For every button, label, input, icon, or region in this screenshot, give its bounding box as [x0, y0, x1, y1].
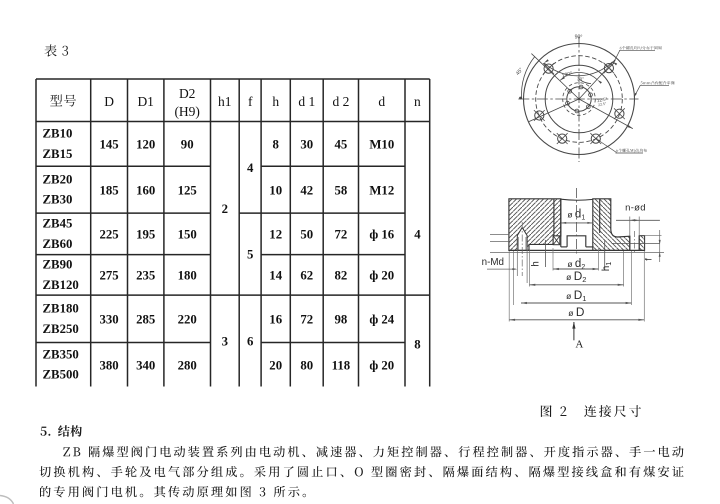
svg-text:5: 5 [247, 248, 253, 262]
svg-text:M12: M12 [369, 183, 394, 197]
svg-text:n: n [414, 94, 421, 109]
svg-text:ZB45: ZB45 [43, 217, 73, 231]
svg-text:82: 82 [335, 269, 348, 283]
svg-text:340: 340 [136, 358, 155, 372]
svg-text:ф 16: ф 16 [369, 228, 394, 242]
svg-text:220: 220 [178, 313, 197, 327]
svg-text:22.5°: 22.5° [598, 101, 608, 107]
svg-text:ZB30: ZB30 [43, 193, 73, 207]
svg-text:30: 30 [300, 138, 313, 152]
svg-text:d: d [378, 94, 385, 109]
svg-text:72: 72 [300, 313, 313, 327]
svg-text:118: 118 [332, 358, 351, 372]
svg-text:62: 62 [300, 269, 313, 283]
svg-text:235: 235 [136, 269, 155, 283]
svg-text:16: 16 [269, 313, 282, 327]
svg-text:8: 8 [272, 138, 278, 152]
svg-text:D: D [104, 94, 114, 109]
svg-text:275: 275 [99, 269, 118, 283]
svg-text:10: 10 [269, 183, 282, 197]
svg-text:ф 20: ф 20 [369, 358, 394, 372]
svg-text:2: 2 [222, 202, 228, 216]
svg-text:d 1: d 1 [298, 94, 315, 109]
svg-text:ZB90: ZB90 [43, 258, 73, 272]
svg-text:285: 285 [136, 313, 155, 327]
svg-text:280: 280 [178, 358, 197, 372]
svg-text:42: 42 [300, 183, 313, 197]
svg-text:ZB10: ZB10 [43, 127, 73, 141]
svg-text:ZB120: ZB120 [43, 278, 79, 292]
svg-text:d 2: d 2 [332, 94, 349, 109]
svg-text:ф 20: ф 20 [369, 269, 394, 283]
svg-text:45: 45 [335, 138, 348, 152]
svg-text:185: 185 [99, 183, 118, 197]
svg-text:330: 330 [99, 313, 118, 327]
svg-text:90°: 90° [575, 35, 583, 41]
svg-text:D1: D1 [137, 94, 154, 109]
svg-text:ø D1: ø D1 [566, 288, 586, 303]
svg-text:h: h [531, 261, 542, 267]
svg-text:(H9): (H9) [174, 104, 200, 119]
svg-text:ZB180: ZB180 [43, 302, 79, 316]
svg-text:72: 72 [335, 228, 348, 242]
svg-text:A: A [575, 339, 583, 351]
svg-text:58: 58 [335, 183, 348, 197]
svg-text:20: 20 [269, 358, 282, 372]
svg-text:ZB500: ZB500 [43, 368, 79, 382]
svg-text:h1: h1 [601, 262, 613, 272]
svg-text:380: 380 [99, 358, 118, 372]
svg-text:80: 80 [300, 358, 313, 372]
svg-text:90: 90 [181, 138, 194, 152]
svg-text:n-Md: n-Md [482, 257, 504, 268]
svg-text:ø D: ø D [568, 305, 584, 319]
svg-text:4: 4 [247, 161, 254, 175]
svg-text:n-ød: n-ød [625, 203, 646, 214]
svg-text:4: 4 [414, 228, 421, 242]
svg-text:145: 145 [99, 138, 118, 152]
svg-text:225: 225 [99, 228, 118, 242]
svg-text:D2: D2 [179, 86, 196, 101]
svg-text:ZB250: ZB250 [43, 322, 79, 336]
svg-text:h: h [272, 94, 279, 109]
svg-text:14: 14 [269, 269, 282, 283]
svg-text:98: 98 [335, 313, 348, 327]
svg-text:45°: 45° [515, 67, 525, 77]
svg-text:125: 125 [178, 183, 197, 197]
svg-text:M10: M10 [369, 138, 394, 152]
svg-text:f: f [644, 258, 655, 261]
svg-text:ZB350: ZB350 [43, 347, 79, 361]
svg-text:ф 24: ф 24 [369, 313, 394, 327]
svg-text:3: 3 [222, 334, 228, 348]
svg-text:f: f [248, 94, 253, 109]
svg-text:8: 8 [414, 338, 420, 352]
svg-text:195: 195 [136, 228, 155, 242]
svg-text:6: 6 [247, 334, 254, 348]
svg-text:180: 180 [178, 269, 197, 283]
svg-text:ZB20: ZB20 [43, 172, 73, 186]
svg-text:150: 150 [178, 228, 197, 242]
svg-text:120: 120 [136, 138, 155, 152]
svg-text:50: 50 [300, 228, 313, 242]
svg-text:h1: h1 [218, 94, 232, 109]
svg-text:ZB15: ZB15 [43, 147, 73, 161]
svg-text:30°: 30° [577, 77, 584, 82]
svg-text:12: 12 [269, 228, 282, 242]
svg-text:120°: 120° [561, 71, 573, 80]
svg-text:ZB60: ZB60 [43, 237, 73, 251]
svg-text:160: 160 [136, 183, 155, 197]
